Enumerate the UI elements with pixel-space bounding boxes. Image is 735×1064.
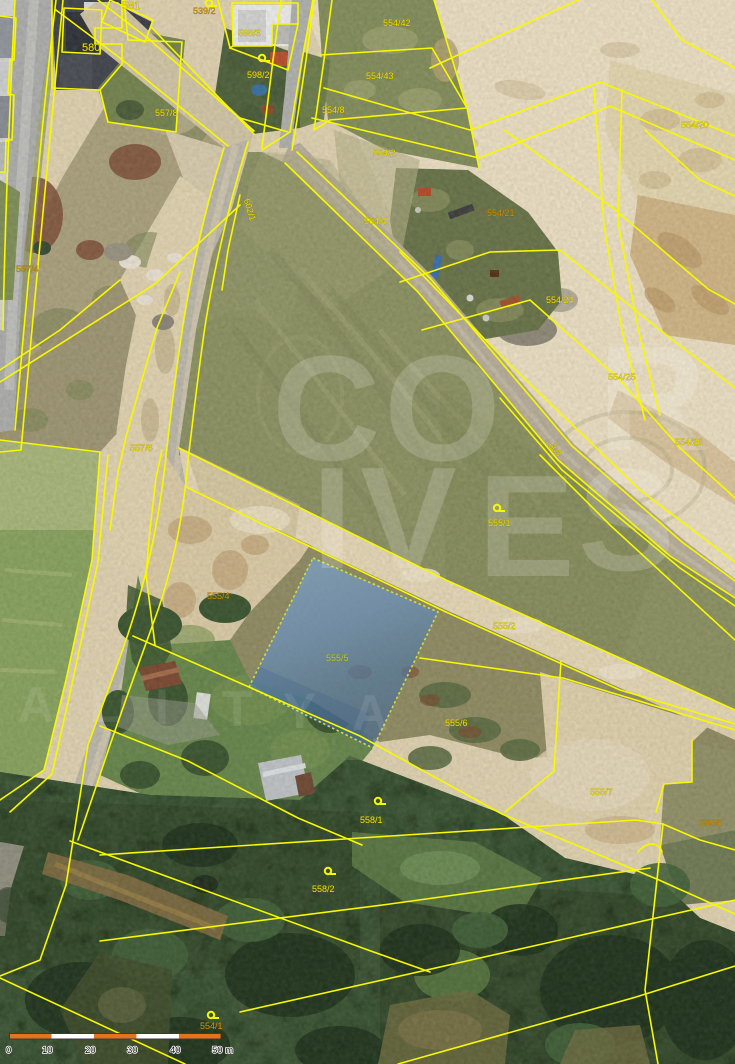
svg-text:A: A: [352, 685, 388, 741]
svg-text:554/42: 554/42: [383, 18, 411, 28]
svg-text:40: 40: [170, 1045, 181, 1056]
svg-text:554/8: 554/8: [322, 105, 345, 115]
svg-text:557/4: 557/4: [16, 264, 39, 274]
svg-text:554/4: 554/4: [364, 216, 387, 226]
svg-text:555/6: 555/6: [445, 718, 468, 728]
svg-text:T: T: [222, 681, 253, 737]
svg-text:50 m: 50 m: [212, 1045, 233, 1056]
svg-text:A: A: [18, 677, 54, 733]
svg-text:L: L: [90, 677, 121, 733]
svg-text:554/43: 554/43: [366, 71, 394, 81]
svg-text:30: 30: [127, 1045, 138, 1056]
svg-text:555/1: 555/1: [488, 518, 511, 528]
svg-text:555/4: 555/4: [207, 591, 230, 601]
svg-text:598/3: 598/3: [238, 28, 261, 38]
svg-text:554/1: 554/1: [200, 1021, 223, 1031]
svg-text:555/7: 555/7: [590, 787, 613, 797]
svg-text:558/2: 558/2: [312, 884, 335, 894]
svg-text:0: 0: [6, 1045, 11, 1056]
svg-text:555/5: 555/5: [326, 653, 349, 663]
svg-text:555/8: 555/8: [700, 818, 723, 828]
svg-text:V: V: [360, 437, 457, 599]
svg-text:20: 20: [85, 1045, 96, 1056]
svg-text:554/24: 554/24: [546, 295, 574, 305]
svg-text:580: 580: [82, 42, 100, 54]
svg-text:554/25: 554/25: [608, 372, 636, 382]
svg-text:554/20: 554/20: [681, 120, 709, 130]
svg-text:539/2: 539/2: [193, 6, 216, 16]
svg-text:554/26: 554/26: [675, 437, 703, 447]
svg-text:555/2: 555/2: [493, 621, 516, 631]
svg-text:558/1: 558/1: [360, 815, 383, 825]
svg-text:554/21: 554/21: [487, 208, 515, 218]
svg-text:I: I: [155, 679, 169, 735]
svg-text:598/2: 598/2: [247, 70, 270, 80]
svg-text:Y: Y: [283, 683, 316, 739]
svg-text:557/8: 557/8: [155, 108, 178, 118]
svg-text:581: 581: [122, 0, 140, 12]
svg-text:I: I: [312, 437, 352, 599]
svg-text:554/2: 554/2: [373, 148, 396, 158]
svg-text:557/6: 557/6: [130, 443, 153, 453]
svg-text:10: 10: [42, 1045, 53, 1056]
